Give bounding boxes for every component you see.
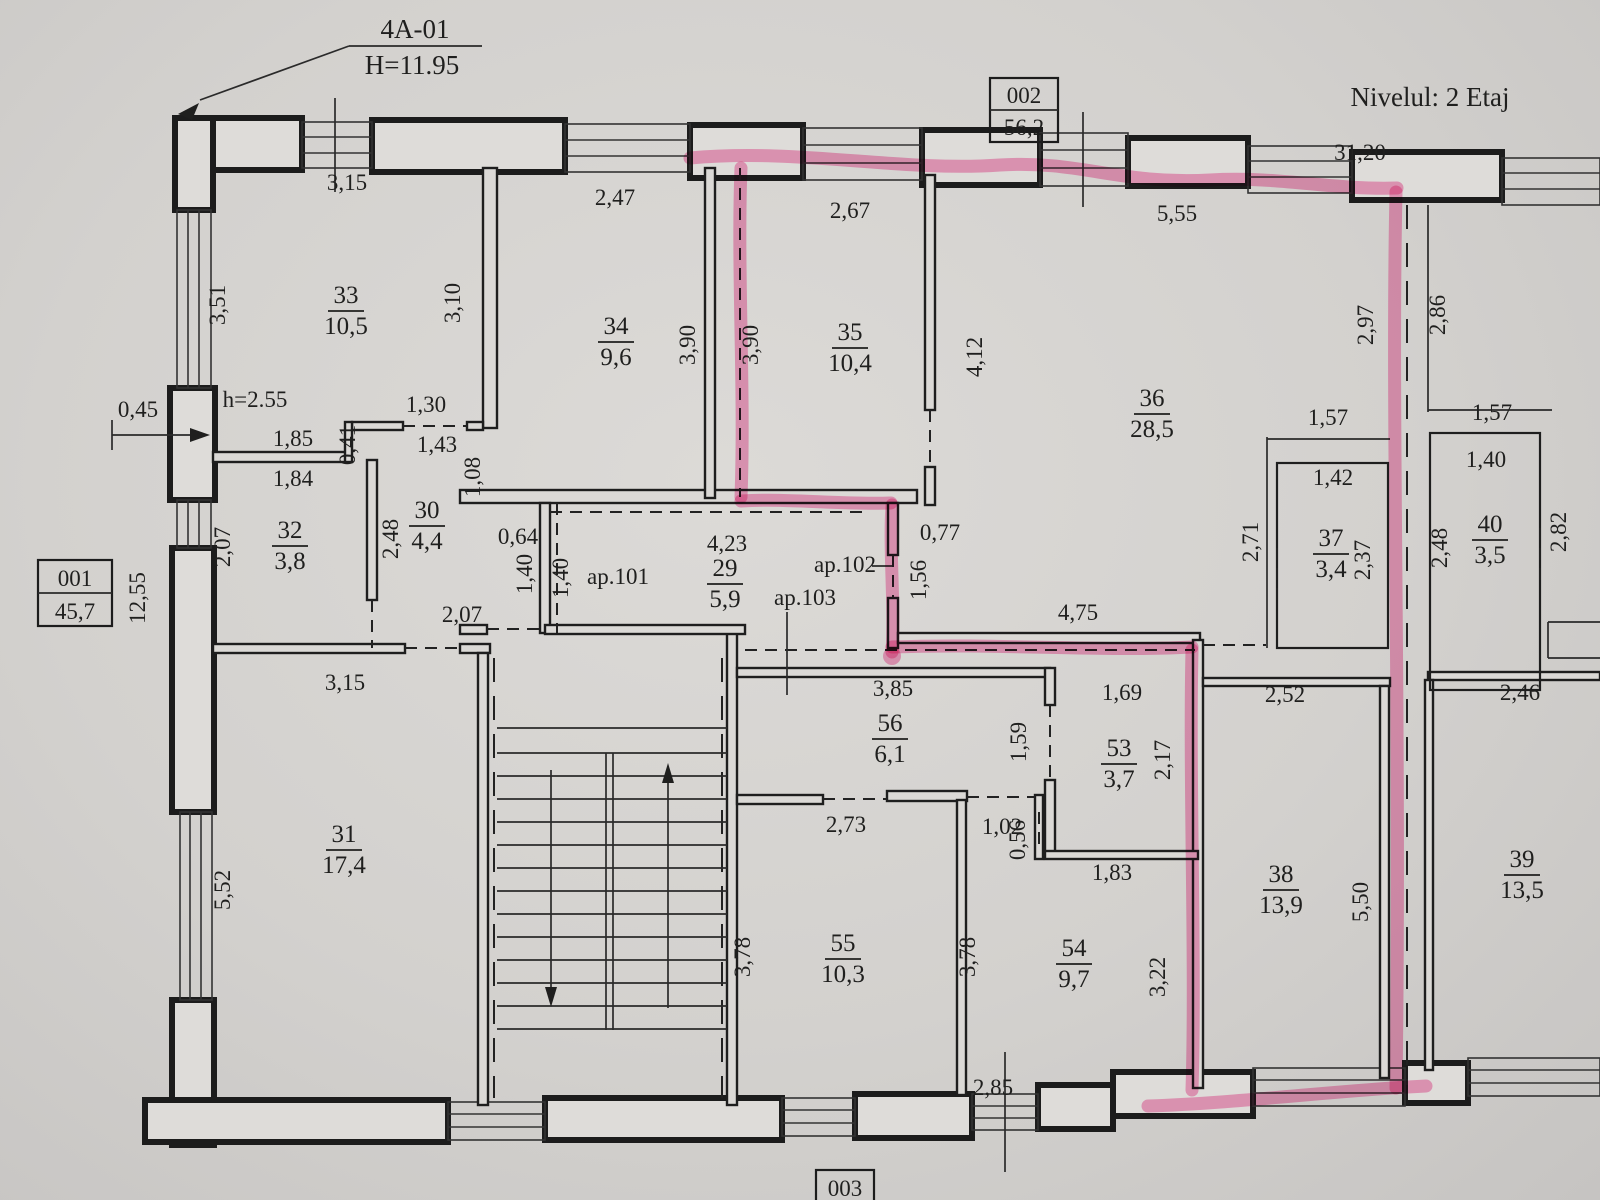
apartment-label-101: ap.101 — [587, 564, 649, 589]
dim-0-77: 0,77 — [920, 520, 960, 545]
dim-2-73: 2,73 — [826, 812, 866, 837]
dim-1-40-closet: 1,40 — [1466, 447, 1506, 472]
svg-text:3,7: 3,7 — [1103, 766, 1134, 793]
dim-3-78-b: 3,78 — [955, 937, 980, 977]
svg-text:3,5: 3,5 — [1474, 542, 1505, 569]
section-height-label: H=11.95 — [365, 50, 459, 80]
room-label-33: 3310,5 — [324, 282, 368, 340]
dim-2-97: 2,97 — [1353, 305, 1378, 345]
dim-2-48-closet: 2,48 — [1427, 528, 1452, 568]
dim-1-83: 1,83 — [1092, 860, 1132, 885]
dim-1-30: 1,30 — [406, 392, 446, 417]
svg-text:13,5: 13,5 — [1500, 877, 1544, 904]
room-label-34: 349,6 — [598, 313, 634, 371]
dim-5-50: 5,50 — [1348, 882, 1373, 922]
svg-text:39: 39 — [1510, 846, 1535, 873]
dimension-labels-vertical: 3,51 3,10 0,41 1,08 2,07 2,48 12,55 3,90… — [125, 283, 1571, 997]
svg-text:10,3: 10,3 — [821, 961, 865, 988]
dim-0-64: 0,64 — [498, 524, 539, 549]
apartment-label-102: ap.102 — [814, 552, 876, 577]
svg-text:10,4: 10,4 — [828, 350, 872, 377]
dim-3-22: 3,22 — [1145, 957, 1170, 997]
scanned-floor-plan: 4A-01 H=11.95 Nivelul: 2 Etaj 002 56,2 0… — [0, 0, 1600, 1200]
svg-text:29: 29 — [713, 555, 738, 582]
room-label-40: 403,5 — [1472, 511, 1508, 569]
dim-3-90-b: 3,90 — [738, 325, 763, 365]
dim-2-17: 2,17 — [1150, 740, 1175, 780]
svg-text:32: 32 — [278, 517, 303, 544]
svg-text:28,5: 28,5 — [1130, 416, 1174, 443]
svg-text:4,4: 4,4 — [411, 528, 443, 555]
dim-2-82: 2,82 — [1546, 512, 1571, 552]
dim-3-78-a: 3,78 — [730, 937, 755, 977]
svg-text:5,9: 5,9 — [709, 586, 740, 613]
svg-text:31: 31 — [332, 821, 357, 848]
unit-id: 001 — [58, 566, 93, 591]
dim-1-57-left: 1,57 — [1308, 405, 1348, 430]
dim-5-52: 5,52 — [210, 870, 235, 910]
unit-area: 56,2 — [1004, 115, 1044, 140]
dimension-ticks — [112, 46, 1083, 1172]
dim-2-48-room30: 2,48 — [378, 519, 403, 559]
unit-id: 003 — [828, 1176, 863, 1200]
dim-1-84: 1,84 — [273, 466, 314, 491]
dim-3-51: 3,51 — [205, 285, 230, 325]
room-label-32: 323,8 — [272, 517, 308, 575]
exterior-walls — [145, 118, 1502, 1145]
room-label-54: 549,7 — [1056, 935, 1092, 993]
dim-2-85: 2,85 — [973, 1075, 1013, 1100]
dim-2-67: 2,67 — [830, 198, 870, 223]
dim-2-07-corridor: 2,07 — [442, 602, 482, 627]
dim-4-23: 4,23 — [707, 531, 747, 556]
unit-box-003: 003 — [816, 1170, 874, 1200]
dim-0-45: 0,45 — [118, 397, 158, 422]
svg-text:54: 54 — [1062, 935, 1088, 962]
dim-2-37: 2,37 — [1350, 540, 1375, 580]
dim-1-40-b: 1,40 — [548, 558, 573, 598]
room-label-56: 566,1 — [872, 710, 908, 768]
room-label-38: 3813,9 — [1259, 861, 1303, 919]
svg-text:55: 55 — [831, 930, 856, 957]
dim-4-12: 4,12 — [962, 337, 987, 377]
dim-1-42: 1,42 — [1313, 465, 1353, 490]
dim-5-55: 5,55 — [1157, 201, 1197, 226]
dim-3-10: 3,10 — [440, 283, 465, 323]
dim-2-07-room32: 2,07 — [210, 527, 235, 567]
room-label-39: 3913,5 — [1500, 846, 1544, 904]
svg-text:33: 33 — [334, 282, 359, 309]
dim-3-15-top: 3,15 — [327, 170, 367, 195]
room-label-37: 373,4 — [1313, 525, 1349, 583]
dim-31-20: 31,20 — [1334, 140, 1386, 165]
svg-text:38: 38 — [1269, 861, 1294, 888]
room-label-35: 3510,4 — [828, 319, 872, 377]
svg-text:6,1: 6,1 — [874, 741, 905, 768]
svg-text:3,8: 3,8 — [274, 548, 305, 575]
stair-down-arrow-icon — [545, 770, 557, 1007]
dimension-labels-horizontal: 3,15 2,47 2,67 5,55 31,20 0,45 h=2.55 1,… — [118, 140, 1540, 1100]
dim-3-85: 3,85 — [873, 676, 913, 701]
dim-0-56: 0,56 — [1005, 820, 1030, 860]
dim-1-08: 1,08 — [460, 457, 485, 497]
floor-plan-drawing: 4A-01 H=11.95 Nivelul: 2 Etaj 002 56,2 0… — [0, 0, 1600, 1200]
room-label-36: 3628,5 — [1130, 385, 1174, 443]
staircase — [497, 728, 727, 1030]
svg-text:34: 34 — [604, 313, 630, 340]
svg-text:10,5: 10,5 — [324, 313, 368, 340]
dim-4-75: 4,75 — [1058, 600, 1098, 625]
dim-2-86: 2,86 — [1425, 295, 1450, 335]
svg-text:35: 35 — [838, 319, 863, 346]
apartment-label-103: ap.103 — [774, 585, 836, 610]
svg-text:37: 37 — [1319, 525, 1344, 552]
ceiling-height-label: h=2.55 — [223, 387, 288, 412]
unit-box-001: 001 45,7 — [38, 560, 112, 626]
svg-text:56: 56 — [878, 710, 903, 737]
svg-text:9,6: 9,6 — [600, 344, 631, 371]
dim-1-40-a: 1,40 — [512, 554, 537, 594]
dim-1-85: 1,85 — [273, 426, 313, 451]
dim-2-46: 2,46 — [1500, 680, 1540, 705]
dim-0-41: 0,41 — [335, 425, 360, 465]
section-ref-label: 4A-01 — [381, 14, 450, 44]
unit-area: 45,7 — [55, 599, 95, 624]
dim-1-59: 1,59 — [1006, 722, 1031, 762]
dim-1-57-right: 1,57 — [1472, 400, 1512, 425]
svg-text:13,9: 13,9 — [1259, 892, 1303, 919]
svg-text:30: 30 — [415, 497, 440, 524]
dim-1-56: 1,56 — [906, 560, 931, 600]
svg-text:9,7: 9,7 — [1058, 966, 1089, 993]
room-label-29: 295,9 — [707, 555, 743, 613]
dim-2-71: 2,71 — [1238, 522, 1263, 562]
dim-1-69: 1,69 — [1102, 680, 1142, 705]
svg-text:17,4: 17,4 — [322, 852, 366, 879]
room-label-31: 3117,4 — [322, 821, 366, 879]
room-label-53: 533,7 — [1101, 735, 1137, 793]
dim-2-47: 2,47 — [595, 185, 635, 210]
svg-text:36: 36 — [1140, 385, 1165, 412]
dim-3-90-a: 3,90 — [675, 325, 700, 365]
dim-3-15-room31: 3,15 — [325, 670, 365, 695]
room-label-30: 304,4 — [409, 497, 445, 555]
level-label: Nivelul: 2 Etaj — [1351, 82, 1510, 112]
svg-text:3,4: 3,4 — [1315, 556, 1347, 583]
unit-id: 002 — [1007, 83, 1042, 108]
dim-1-43: 1,43 — [417, 432, 457, 457]
svg-text:40: 40 — [1478, 511, 1503, 538]
dim-2-52: 2,52 — [1265, 682, 1305, 707]
svg-text:53: 53 — [1107, 735, 1132, 762]
dim-12-55: 12,55 — [125, 572, 150, 624]
room-label-55: 5510,3 — [821, 930, 865, 988]
